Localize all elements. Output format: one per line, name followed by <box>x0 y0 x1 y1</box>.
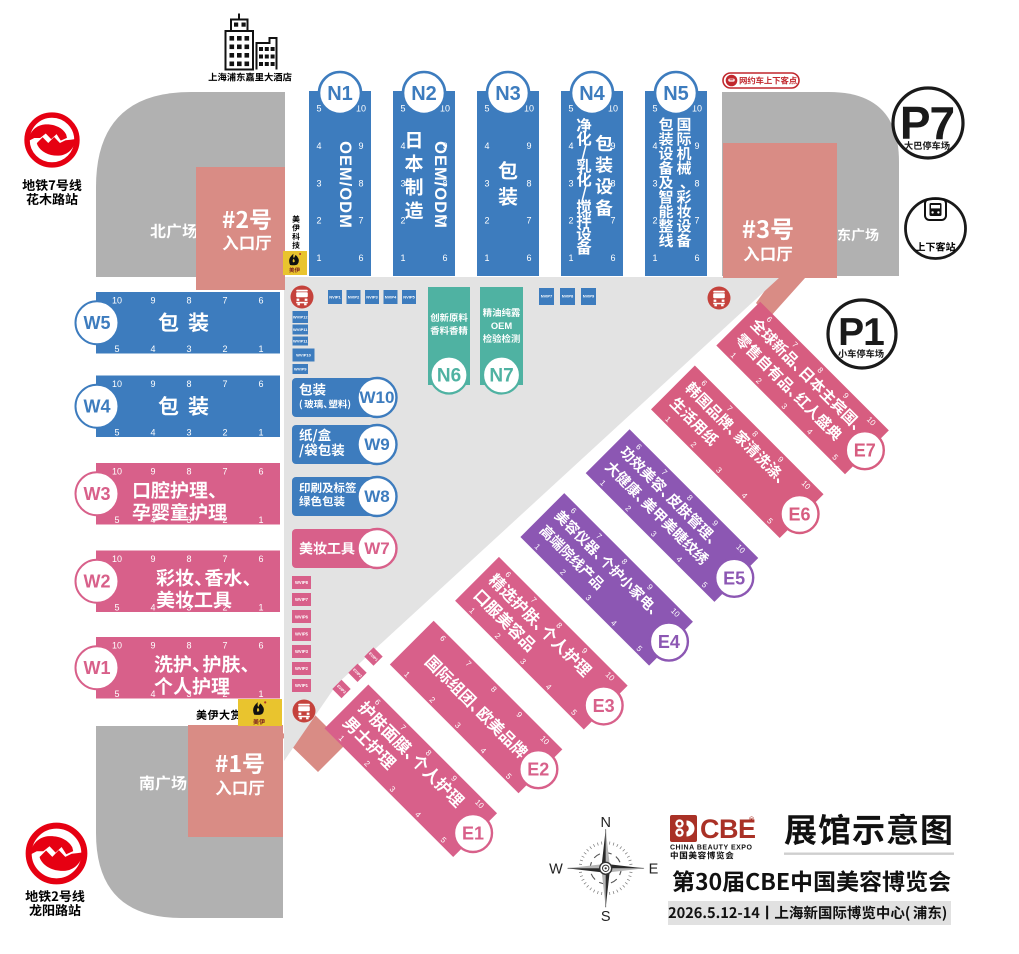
svg-text:N6: N6 <box>437 366 461 387</box>
svg-text:3: 3 <box>186 428 191 438</box>
svg-text:OEM/ODM: OEM/ODM <box>336 141 354 229</box>
svg-text:7: 7 <box>222 379 227 389</box>
svg-text:WVIP1: WVIP1 <box>295 683 309 688</box>
svg-text:7: 7 <box>526 216 531 226</box>
svg-text:WVIP9: WVIP9 <box>294 367 307 372</box>
svg-text:1: 1 <box>258 428 263 438</box>
svg-text:7: 7 <box>694 216 699 226</box>
svg-text:8: 8 <box>186 641 191 651</box>
svg-text:2: 2 <box>316 216 321 226</box>
svg-text:3: 3 <box>484 178 489 188</box>
svg-text:6: 6 <box>694 253 699 263</box>
svg-text:WVIP11: WVIP11 <box>293 339 308 344</box>
svg-text:6: 6 <box>258 379 263 389</box>
svg-text:4: 4 <box>316 141 321 151</box>
svg-text:N3: N3 <box>495 83 521 105</box>
svg-text:5: 5 <box>114 689 119 699</box>
svg-text:WVIP6: WVIP6 <box>295 614 309 619</box>
svg-text:CHINA BEAUTY EXPO: CHINA BEAUTY EXPO <box>670 845 752 852</box>
svg-text:2: 2 <box>400 216 405 226</box>
svg-text:5: 5 <box>114 344 119 354</box>
svg-text:7: 7 <box>222 467 227 477</box>
svg-text:1: 1 <box>652 253 657 263</box>
svg-text:WVIP2: WVIP2 <box>295 666 309 671</box>
svg-text:NVIP7: NVIP7 <box>541 294 553 299</box>
svg-text:9: 9 <box>694 141 699 151</box>
svg-text:WVIP12: WVIP12 <box>293 315 308 320</box>
svg-text:5: 5 <box>114 515 119 525</box>
svg-text:E7: E7 <box>854 441 876 461</box>
svg-text:N4: N4 <box>579 83 605 105</box>
svg-text:2: 2 <box>222 344 227 354</box>
svg-text:4: 4 <box>400 141 405 151</box>
svg-text:W1: W1 <box>84 658 111 678</box>
svg-text:4: 4 <box>150 603 155 613</box>
svg-text:6: 6 <box>258 641 263 651</box>
svg-text:W3: W3 <box>84 484 111 504</box>
svg-text:OEM/ODM: OEM/ODM <box>431 141 449 229</box>
svg-text:2: 2 <box>222 428 227 438</box>
svg-text:8: 8 <box>526 178 531 188</box>
svg-text:W9: W9 <box>364 435 390 454</box>
svg-text:6: 6 <box>258 467 263 477</box>
svg-text:7: 7 <box>610 216 615 226</box>
svg-text:7: 7 <box>222 554 227 564</box>
svg-text:W4: W4 <box>84 396 111 416</box>
svg-text:2: 2 <box>484 216 489 226</box>
svg-text:10: 10 <box>112 379 122 389</box>
svg-text:8: 8 <box>186 379 191 389</box>
svg-text:E1: E1 <box>462 824 484 844</box>
svg-text:1: 1 <box>258 689 263 699</box>
svg-text:W7: W7 <box>364 539 390 558</box>
svg-text:6: 6 <box>526 253 531 263</box>
svg-text:N2: N2 <box>411 83 437 105</box>
svg-text:5: 5 <box>114 428 119 438</box>
svg-text:W5: W5 <box>84 313 111 333</box>
svg-text:E2: E2 <box>527 760 549 780</box>
svg-text:4: 4 <box>652 141 657 151</box>
svg-text:7: 7 <box>222 296 227 306</box>
svg-text:7: 7 <box>222 641 227 651</box>
svg-text:7: 7 <box>358 216 363 226</box>
svg-text:S: S <box>601 909 611 925</box>
svg-text:E3: E3 <box>593 696 615 716</box>
svg-text:W2: W2 <box>84 571 111 591</box>
svg-text:3: 3 <box>316 178 321 188</box>
svg-text:NVIP8: NVIP8 <box>562 294 574 299</box>
svg-text:NVIP1: NVIP1 <box>329 295 341 300</box>
svg-text:8: 8 <box>186 554 191 564</box>
svg-text:9: 9 <box>150 296 155 306</box>
svg-text:10: 10 <box>112 296 122 306</box>
svg-text:5: 5 <box>114 603 119 613</box>
svg-text:9: 9 <box>150 554 155 564</box>
svg-text:3: 3 <box>652 178 657 188</box>
svg-text:NVIP2: NVIP2 <box>348 295 360 300</box>
svg-text:10: 10 <box>112 554 122 564</box>
svg-text:1: 1 <box>258 603 263 613</box>
svg-text:9: 9 <box>150 467 155 477</box>
svg-text:WVIP5: WVIP5 <box>295 632 309 637</box>
svg-text:W: W <box>549 862 563 878</box>
svg-text:WVIP8: WVIP8 <box>295 580 309 585</box>
svg-text:8: 8 <box>694 178 699 188</box>
svg-text:W10: W10 <box>360 388 395 407</box>
svg-text:4: 4 <box>568 141 573 151</box>
svg-text:W8: W8 <box>364 487 390 506</box>
svg-text:6: 6 <box>442 253 447 263</box>
svg-text:3: 3 <box>568 178 573 188</box>
svg-text:5: 5 <box>568 104 573 114</box>
svg-text:N7: N7 <box>489 366 513 387</box>
svg-text:NVIP3: NVIP3 <box>366 295 378 300</box>
svg-text:1: 1 <box>400 253 405 263</box>
svg-text:WVIP10: WVIP10 <box>296 353 311 358</box>
svg-text:WVIP11: WVIP11 <box>293 327 308 332</box>
svg-text:NVIP9: NVIP9 <box>583 294 595 299</box>
svg-text:N: N <box>600 815 610 831</box>
svg-text:NVIP4: NVIP4 <box>385 295 397 300</box>
svg-text:5: 5 <box>484 104 489 114</box>
svg-text:3: 3 <box>400 178 405 188</box>
svg-text:4: 4 <box>484 141 489 151</box>
svg-text:N1: N1 <box>327 83 353 105</box>
svg-text:10: 10 <box>112 467 122 477</box>
svg-text:CBE: CBE <box>700 814 756 844</box>
svg-text:N5: N5 <box>663 83 689 105</box>
svg-text:1: 1 <box>484 253 489 263</box>
svg-text:1: 1 <box>258 344 263 354</box>
svg-text:9: 9 <box>358 141 363 151</box>
svg-text:6: 6 <box>258 296 263 306</box>
svg-text:E: E <box>649 862 659 878</box>
svg-text:4: 4 <box>150 428 155 438</box>
svg-text:1: 1 <box>316 253 321 263</box>
svg-text:E5: E5 <box>723 568 745 588</box>
svg-text:5: 5 <box>316 104 321 114</box>
svg-text:5: 5 <box>652 104 657 114</box>
svg-text:9: 9 <box>150 641 155 651</box>
svg-text:E4: E4 <box>658 632 680 652</box>
svg-text:4: 4 <box>150 689 155 699</box>
svg-text:2: 2 <box>652 216 657 226</box>
svg-text:9: 9 <box>150 379 155 389</box>
svg-text:WVIP3: WVIP3 <box>295 649 309 654</box>
svg-text:6: 6 <box>258 554 263 564</box>
svg-text:1: 1 <box>258 515 263 525</box>
svg-text:P1: P1 <box>838 311 884 354</box>
svg-text:3: 3 <box>186 344 191 354</box>
svg-text:6: 6 <box>358 253 363 263</box>
svg-text:8: 8 <box>186 296 191 306</box>
svg-text:5: 5 <box>400 104 405 114</box>
svg-text:4: 4 <box>150 344 155 354</box>
svg-text:1: 1 <box>568 253 573 263</box>
svg-text:9: 9 <box>526 141 531 151</box>
svg-text:10: 10 <box>112 641 122 651</box>
svg-text:8: 8 <box>186 467 191 477</box>
svg-text:8: 8 <box>358 178 363 188</box>
svg-text:2: 2 <box>568 216 573 226</box>
svg-text:E6: E6 <box>788 505 810 525</box>
svg-text:WVIP7: WVIP7 <box>295 597 309 602</box>
svg-text:OEM: OEM <box>491 320 513 331</box>
svg-text:®: ® <box>749 816 755 824</box>
svg-text:6: 6 <box>610 253 615 263</box>
svg-text:NVIP5: NVIP5 <box>403 295 415 300</box>
